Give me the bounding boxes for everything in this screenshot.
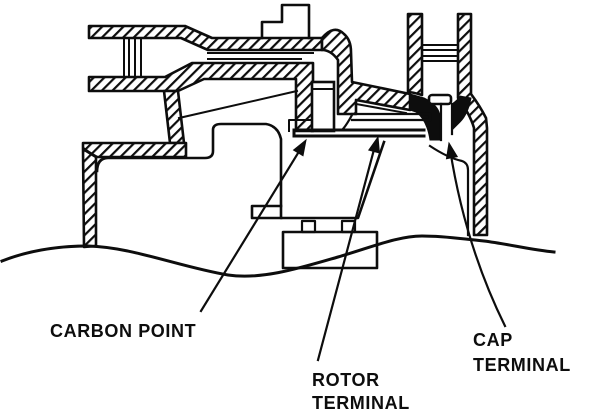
label-rotor-terminal-line2: TERMINAL [312, 393, 410, 410]
right-inner-skirt-line [430, 146, 468, 235]
cap-body-section [83, 5, 487, 247]
label-carbon-point: CARBON POINT [50, 321, 196, 341]
tower-left-wall [408, 14, 422, 95]
left-flange [83, 143, 186, 157]
conductor-strip [208, 53, 313, 59]
tube-ribs [124, 40, 141, 77]
rotor-arm-bar [294, 130, 424, 136]
electrode-slot [441, 104, 452, 140]
leader-lines [201, 136, 505, 360]
rotor-terminal-strip [342, 114, 430, 130]
top-boss [262, 5, 309, 38]
rotor-collar [252, 206, 281, 218]
rotor-terminal-leader [318, 142, 376, 360]
label-rotor-terminal-line1: ROTOR [312, 370, 380, 390]
left-skirt-wall [83, 149, 96, 247]
inner-lead-line [179, 91, 297, 118]
rotor-assembly [97, 82, 430, 268]
carbon-point-leader [201, 145, 303, 311]
figure-distributor-cap: CARBON POINT ROTOR TERMINAL CAP TERMINAL [0, 0, 608, 410]
tower-terminal-rings [422, 45, 458, 61]
diagram-canvas: CARBON POINT ROTOR TERMINAL CAP TERMINAL [0, 0, 608, 410]
cap-terminal-electrode [429, 95, 451, 104]
inner-surface-and-platform [97, 124, 384, 218]
rotor-foot-left [302, 221, 315, 232]
tube-bottom-wall [89, 63, 313, 131]
carbon-point-arrowhead [294, 137, 311, 156]
labels: CARBON POINT ROTOR TERMINAL CAP TERMINAL [50, 321, 571, 410]
label-cap-terminal-line2: TERMINAL [473, 355, 571, 375]
label-cap-terminal-line1: CAP [473, 330, 513, 350]
tower-right-wall [458, 14, 487, 235]
